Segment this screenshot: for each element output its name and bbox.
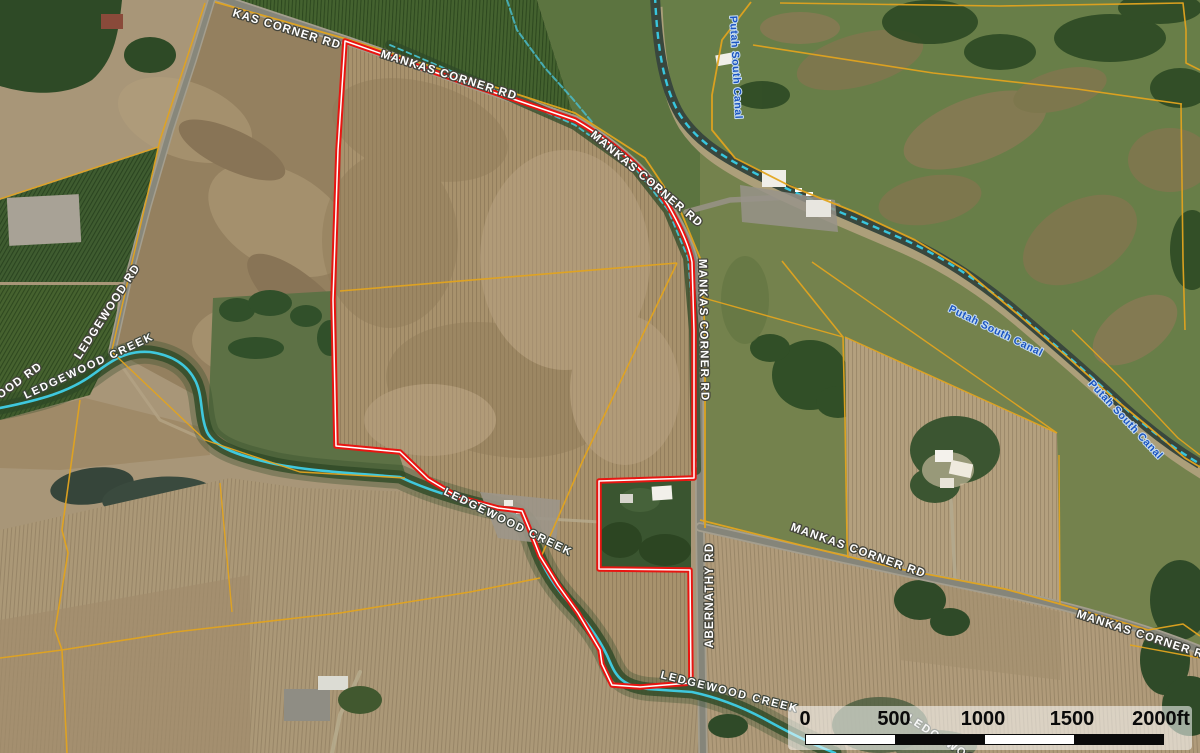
- scale-tick-2000: 2000ft: [1132, 708, 1190, 731]
- scale-tick-1500: 1500: [1050, 708, 1095, 731]
- road-label-abernathy: ABERNATHY RD: [704, 543, 716, 648]
- map-canvas[interactable]: KAS CORNER RD MANKAS CORNER RD MANKAS CO…: [0, 0, 1200, 753]
- map-viewport[interactable]: KAS CORNER RD MANKAS CORNER RD MANKAS CO…: [0, 0, 1200, 753]
- scale-bar-segments: [805, 734, 1164, 745]
- scale-bar: 0 500 1000 1500 2000ft: [788, 706, 1192, 750]
- scale-tick-0: 0: [799, 708, 810, 731]
- scale-tick-1000: 1000: [961, 708, 1006, 731]
- house-roof: [652, 485, 673, 500]
- road-label-mankas-vertical: MANKAS CORNER RD: [696, 259, 710, 402]
- scale-tick-500: 500: [877, 708, 910, 731]
- barn-roof: [284, 689, 330, 721]
